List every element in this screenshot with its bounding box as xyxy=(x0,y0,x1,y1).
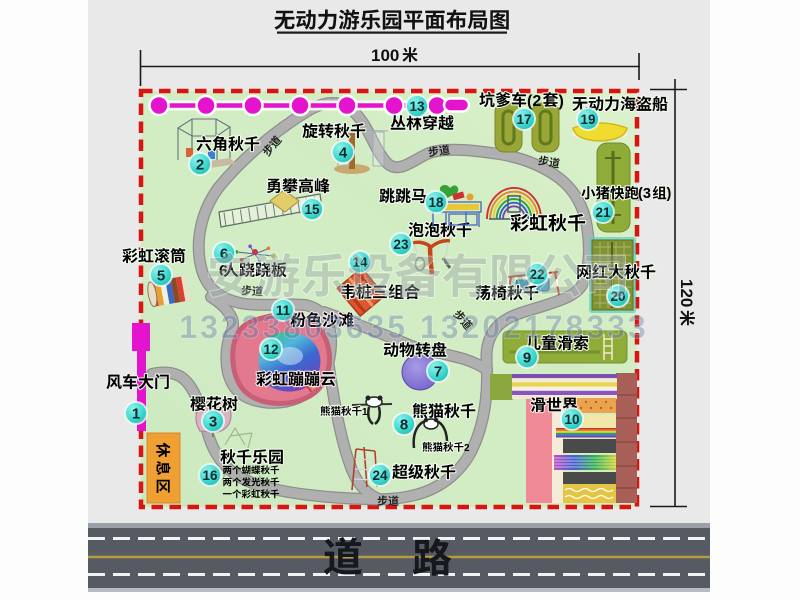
svg-text:13233803635 13202178333: 13233803635 13202178333 xyxy=(179,309,648,345)
svg-text:19: 19 xyxy=(580,112,595,127)
svg-text:17: 17 xyxy=(516,112,531,127)
svg-text:3: 3 xyxy=(209,413,217,430)
svg-text:1: 1 xyxy=(362,407,368,418)
svg-text:100: 100 xyxy=(371,46,399,65)
svg-text:21: 21 xyxy=(595,205,611,220)
svg-text:4: 4 xyxy=(339,144,348,161)
svg-text:7: 7 xyxy=(434,363,442,380)
svg-text:16: 16 xyxy=(202,468,218,483)
svg-text:15: 15 xyxy=(304,202,320,217)
svg-text:13: 13 xyxy=(409,99,425,114)
svg-text:2: 2 xyxy=(196,156,204,173)
svg-text:23: 23 xyxy=(393,237,409,252)
svg-text:24: 24 xyxy=(372,468,388,483)
svg-text:(2: (2 xyxy=(527,93,541,110)
svg-text:10: 10 xyxy=(564,412,579,427)
svg-text:8: 8 xyxy=(400,416,408,433)
svg-text:): ) xyxy=(559,93,564,110)
svg-text:2: 2 xyxy=(464,443,470,454)
svg-text:9: 9 xyxy=(523,349,531,366)
svg-text:120: 120 xyxy=(677,279,696,307)
svg-text:): ) xyxy=(667,186,672,202)
svg-text:1: 1 xyxy=(132,405,140,422)
svg-text:18: 18 xyxy=(428,195,444,210)
svg-text:5: 5 xyxy=(157,267,165,284)
svg-text:(3: (3 xyxy=(638,186,651,202)
